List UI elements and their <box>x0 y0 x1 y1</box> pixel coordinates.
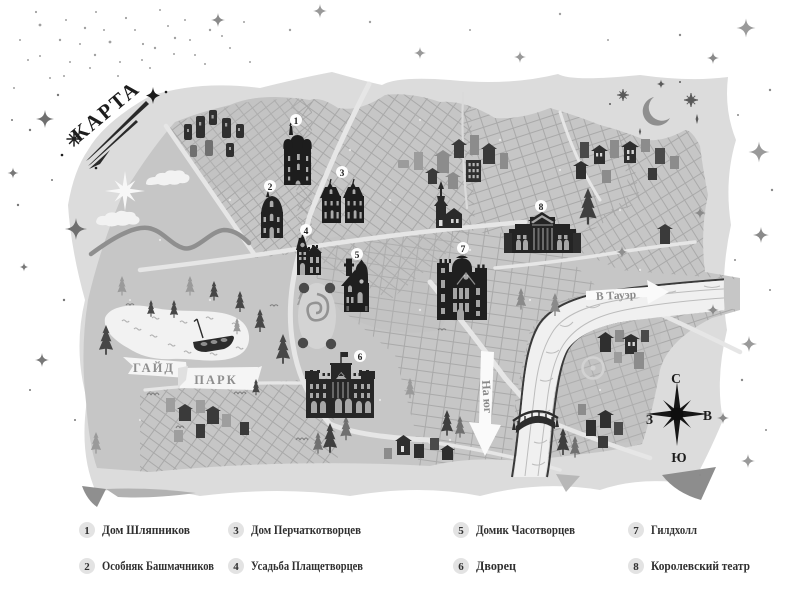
svg-text:6: 6 <box>458 561 464 573</box>
svg-text:ПАРК: ПАРК <box>194 373 237 387</box>
svg-text:8: 8 <box>633 561 639 573</box>
svg-text:Усадьба Плащетворцев: Усадьба Плащетворцев <box>251 559 363 573</box>
svg-text:1: 1 <box>294 117 299 127</box>
svg-text:Королевский театр: Королевский театр <box>651 559 750 573</box>
svg-text:5: 5 <box>355 251 360 261</box>
svg-text:3: 3 <box>340 169 345 179</box>
svg-text:2: 2 <box>84 561 90 573</box>
svg-text:1: 1 <box>84 525 90 537</box>
svg-text:Ю: Ю <box>671 450 686 465</box>
svg-text:З: З <box>646 412 653 427</box>
svg-text:Дворец: Дворец <box>476 559 516 573</box>
svg-text:2: 2 <box>268 183 273 193</box>
svg-text:7: 7 <box>461 245 466 255</box>
svg-text:В Тауэр: В Тауэр <box>596 289 637 303</box>
svg-text:5: 5 <box>458 525 464 537</box>
svg-text:4: 4 <box>233 561 239 573</box>
svg-text:Особняк Башмачников: Особняк Башмачников <box>102 559 214 573</box>
svg-text:Гилдхолл: Гилдхолл <box>651 523 697 537</box>
svg-text:Дом Шляпников: Дом Шляпников <box>102 523 190 537</box>
svg-text:ГАЙД: ГАЙД <box>133 361 175 375</box>
svg-text:С: С <box>671 371 681 386</box>
svg-text:Домик Часотворцев: Домик Часотворцев <box>476 523 575 537</box>
svg-text:7: 7 <box>633 525 639 537</box>
svg-text:4: 4 <box>304 227 309 237</box>
svg-text:На юг: На юг <box>479 380 495 414</box>
svg-text:В: В <box>703 408 712 423</box>
svg-text:Дом Перчаткотворцев: Дом Перчаткотворцев <box>251 523 361 537</box>
svg-text:3: 3 <box>233 525 239 537</box>
svg-text:6: 6 <box>358 353 363 363</box>
svg-text:8: 8 <box>539 203 544 213</box>
